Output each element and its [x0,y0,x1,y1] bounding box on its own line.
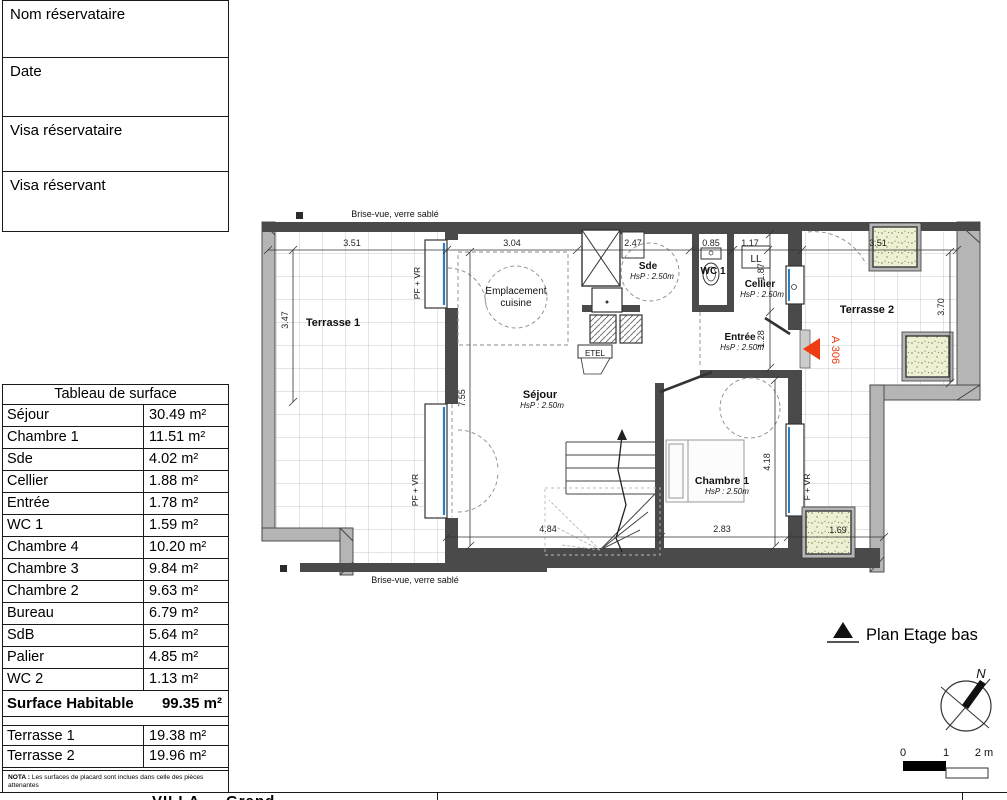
compass-north-label: N [976,666,986,681]
window-label-pf-vr: PF + VR [412,267,422,299]
scale-bar: 0 1 2 m [900,747,993,778]
table-row: Palier4.85 m² [3,647,228,669]
dim-label: 0.85 [702,238,720,248]
title-block-divider [962,792,963,800]
plan-legend: Plan Etage bas [827,622,978,644]
form-field-visa-reservataire[interactable]: Visa réservataire [2,116,229,172]
room-hsp: HsP : 2.50m [630,272,674,281]
etel-label: ETEL [585,349,606,358]
scale-label: 1 [943,747,949,759]
title-block-partial-text: VILLA … Grand … [152,794,452,800]
brise-vue-marker-bottom [280,565,287,572]
brise-vue-label-top: Brise-vue, verre sablé [351,209,439,219]
title-block-line [0,792,1007,793]
dim-label: 7.55 [457,389,467,407]
form-field-visa-reservant[interactable]: Visa réservant [2,171,229,232]
kitchen-zone-label: Emplacement [485,286,546,297]
kitchen-zone-label: cuisine [500,298,532,309]
dim-label: 3.70 [936,298,946,316]
table-row: Chambre 111.51 m² [3,427,228,449]
room-label-entree: Entrée [724,332,756,343]
plan-title: Plan Etage bas [866,626,978,644]
brise-vue-marker-top [296,212,303,219]
table-row: Chambre 410.20 m² [3,537,228,559]
table-spacer [3,717,228,726]
table-row: Séjour30.49 m² [3,405,228,427]
room-hsp: HsP : 2.50m [720,343,764,352]
table-row: Entrée1.78 m² [3,493,228,515]
scale-label: 0 [900,747,906,759]
room-label-cellier: Cellier [745,279,776,290]
dim-label: 2.47 [624,238,642,248]
table-row: WC 11.59 m² [3,515,228,537]
surface-table: Tableau de surface Séjour30.49 m² Chambr… [2,384,229,793]
brise-vue-label-bottom: Brise-vue, verre sablé [371,575,459,585]
room-label-chambre1: Chambre 1 [695,475,749,487]
dim-label: 4.18 [762,453,772,471]
room-label-sejour: Séjour [523,389,558,401]
form-field-label: Visa réservant [10,177,106,194]
room-label-terrasse2: Terrasse 2 [840,304,894,316]
table-row: Terrasse 219.96 m² [3,746,228,768]
stairs [545,429,660,555]
table-row: SdB5.64 m² [3,625,228,647]
room-label-wc1: WC 1 [701,266,726,277]
room-hsp: HsP : 2.50m [705,487,749,496]
table-row: Cellier1.88 m² [3,471,228,493]
table-row: Sde4.02 m² [3,449,228,471]
surface-table-title: Tableau de surface [3,385,228,405]
table-row: Bureau6.79 m² [3,603,228,625]
form-field-nom[interactable]: Nom réservataire [2,0,229,58]
room-hsp: HsP : 2.50m [740,290,784,299]
dim-label: 1.69 [829,525,847,535]
form-field-label: Visa réservataire [10,122,122,139]
room-label-ll: LL [750,254,762,265]
unit-number-label: A 306 [829,336,841,364]
window-label-f-vr: F + VR [802,474,812,501]
form-field-label: Nom réservataire [10,6,125,23]
form-field-date[interactable]: Date [2,57,229,117]
room-hsp: HsP : 2.50m [520,401,564,410]
floor-plan-drawing: A 306 3.51 [240,195,1007,790]
dim-label: 1.17 [741,238,759,248]
dim-label: 3.04 [503,238,521,248]
room-label-sde: Sde [639,261,658,272]
table-row: WC 21.13 m² [3,669,228,691]
table-row: Chambre 39.84 m² [3,559,228,581]
legend-triangle-icon [833,622,853,638]
door-leaves [660,318,790,392]
dim-label: 3.51 [343,238,361,248]
compass-icon: N [941,666,991,731]
table-row: Terrasse 119.38 m² [3,726,228,746]
floor-plan-sheet: Nom réservataire Date Visa réservataire … [0,0,1007,800]
window-label-pf-vr: PF + VR [410,474,420,506]
room-label-terrasse1: Terrasse 1 [306,317,360,329]
dim-label: 2.83 [713,524,731,534]
table-row: Chambre 29.63 m² [3,581,228,603]
form-field-label: Date [10,63,42,80]
dim-label: 4.84 [539,524,557,534]
dim-label: 3.51 [869,238,887,248]
nota-text: NOTA : Les surfaces de placard sont incl… [3,770,228,792]
dim-label: 3.47 [280,311,290,329]
surface-total-row: Surface Habitable99.35 m² [3,691,228,717]
scale-label: 2 m [975,747,993,759]
